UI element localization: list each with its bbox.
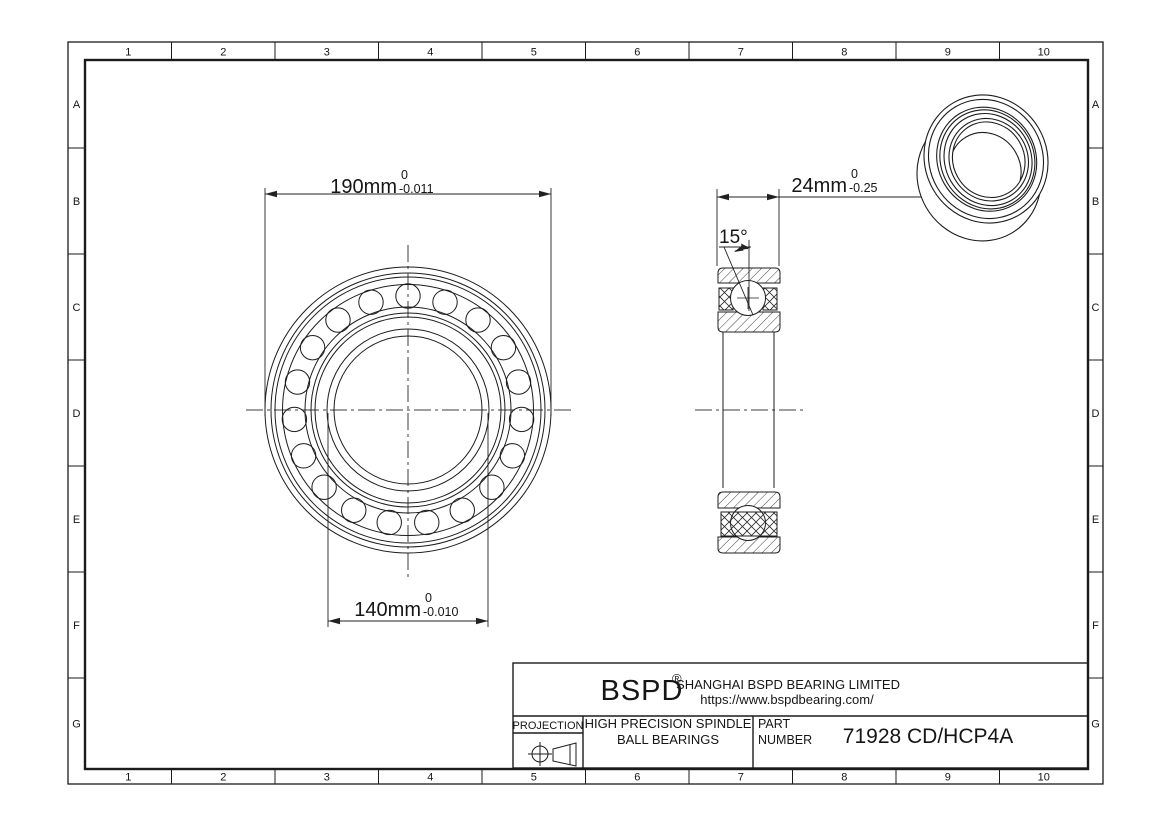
ruler-row-label: E: [1092, 514, 1099, 526]
width-dimension-text: 24mm: [791, 175, 847, 197]
projection-symbol-icon: [528, 742, 576, 766]
company-website: https://www.bspdbearing.com/: [700, 692, 874, 707]
width-arrow-left: [717, 194, 729, 200]
ball-circle: [300, 335, 324, 359]
ball-circle: [326, 308, 350, 332]
part-label-line-2: NUMBER: [758, 733, 812, 747]
ball-circle: [491, 335, 515, 359]
ruler-column-label: 8: [841, 47, 847, 59]
width-arrow-right: [767, 194, 779, 200]
projection-frustum: [553, 743, 576, 766]
od-dimension-text: 190mm: [330, 176, 397, 198]
contact-angle-text: 15°: [719, 227, 748, 248]
drawing-sheet: 1122334455667788991010AABBCCDDEEFFGG 190…: [0, 0, 1170, 827]
ball-circle: [342, 498, 366, 522]
ball-circle: [509, 407, 533, 431]
ruler-column-label: 5: [531, 772, 537, 784]
ruler-column-label: 6: [634, 772, 640, 784]
ruler-column-label: 3: [324, 772, 330, 784]
bore-tolerance-lower: -0.010: [423, 605, 458, 619]
ruler-column-label: 7: [738, 47, 744, 59]
od-arrow-right: [539, 191, 551, 197]
ball-circle: [480, 475, 504, 499]
bore-arrow-left: [328, 618, 340, 624]
ruler-row-label: G: [1091, 719, 1100, 731]
ruler-column-label: 5: [531, 47, 537, 59]
ball-circle: [282, 407, 306, 431]
od-arrow-left: [265, 191, 277, 197]
ruler-row-label: G: [72, 719, 81, 731]
width-tolerance-upper: 0: [851, 167, 858, 181]
ruler-row-label: A: [1092, 99, 1100, 111]
ruler-column-label: 9: [945, 47, 951, 59]
ball-circle: [506, 370, 530, 394]
company-name: SHANGHAI BSPD BEARING LIMITED: [676, 677, 900, 692]
ruler-column-label: 1: [125, 772, 131, 784]
ruler-column-label: 6: [634, 47, 640, 59]
ruler-column-label: 1: [125, 47, 131, 59]
front-view: [246, 245, 572, 578]
bore-tolerance-upper: 0: [425, 591, 432, 605]
od-tolerance-lower: -0.011: [399, 182, 434, 196]
ruler-column-label: 9: [945, 772, 951, 784]
ruler-column-label: 4: [427, 772, 433, 784]
ruler-column-label: 2: [220, 772, 226, 784]
section-bottom-cage: [721, 512, 777, 536]
part-label-line-1: PART: [758, 717, 791, 731]
od-tolerance-upper: 0: [401, 168, 408, 182]
part-number-value: 71928 CD/HCP4A: [843, 725, 1013, 748]
ruler-column-label: 3: [324, 47, 330, 59]
ruler-column-label: 10: [1038, 772, 1050, 784]
ruler-row-label: D: [73, 408, 81, 420]
bore-dimension-text: 140mm: [354, 599, 421, 621]
ruler-row-label: B: [73, 196, 80, 208]
ruler-column-label: 10: [1038, 47, 1050, 59]
ball-circle: [377, 510, 401, 534]
ball-circle: [450, 498, 474, 522]
ruler-row-label: C: [73, 302, 81, 314]
product-line-1: HIGH PRECISION SPINDLE: [585, 716, 752, 731]
bore-arrow-right: [476, 618, 488, 624]
ruler-row-label: E: [73, 514, 80, 526]
ball-circle: [312, 475, 336, 499]
ball-circle: [466, 308, 490, 332]
ruler-column-label: 8: [841, 772, 847, 784]
width-tolerance-lower: -0.25: [849, 181, 878, 195]
ruler-column-label: 4: [427, 47, 433, 59]
ruler-row-label: D: [1092, 408, 1100, 420]
ruler-column-label: 7: [738, 772, 744, 784]
ruler-row-label: F: [1092, 620, 1099, 632]
ruler-row-label: A: [73, 99, 81, 111]
ruler-row-label: C: [1092, 302, 1100, 314]
ruler-row-label: F: [73, 620, 80, 632]
projection-label: PROJECTION: [513, 720, 584, 732]
ruler-column-label: 2: [220, 47, 226, 59]
product-line-2: BALL BEARINGS: [617, 732, 719, 747]
ball-circle: [285, 370, 309, 394]
isometric-view: [888, 72, 1078, 263]
ruler-row-label: B: [1092, 196, 1099, 208]
ball-circle: [415, 510, 439, 534]
drawing-canvas: 1122334455667788991010AABBCCDDEEFFGG 190…: [0, 0, 1170, 827]
